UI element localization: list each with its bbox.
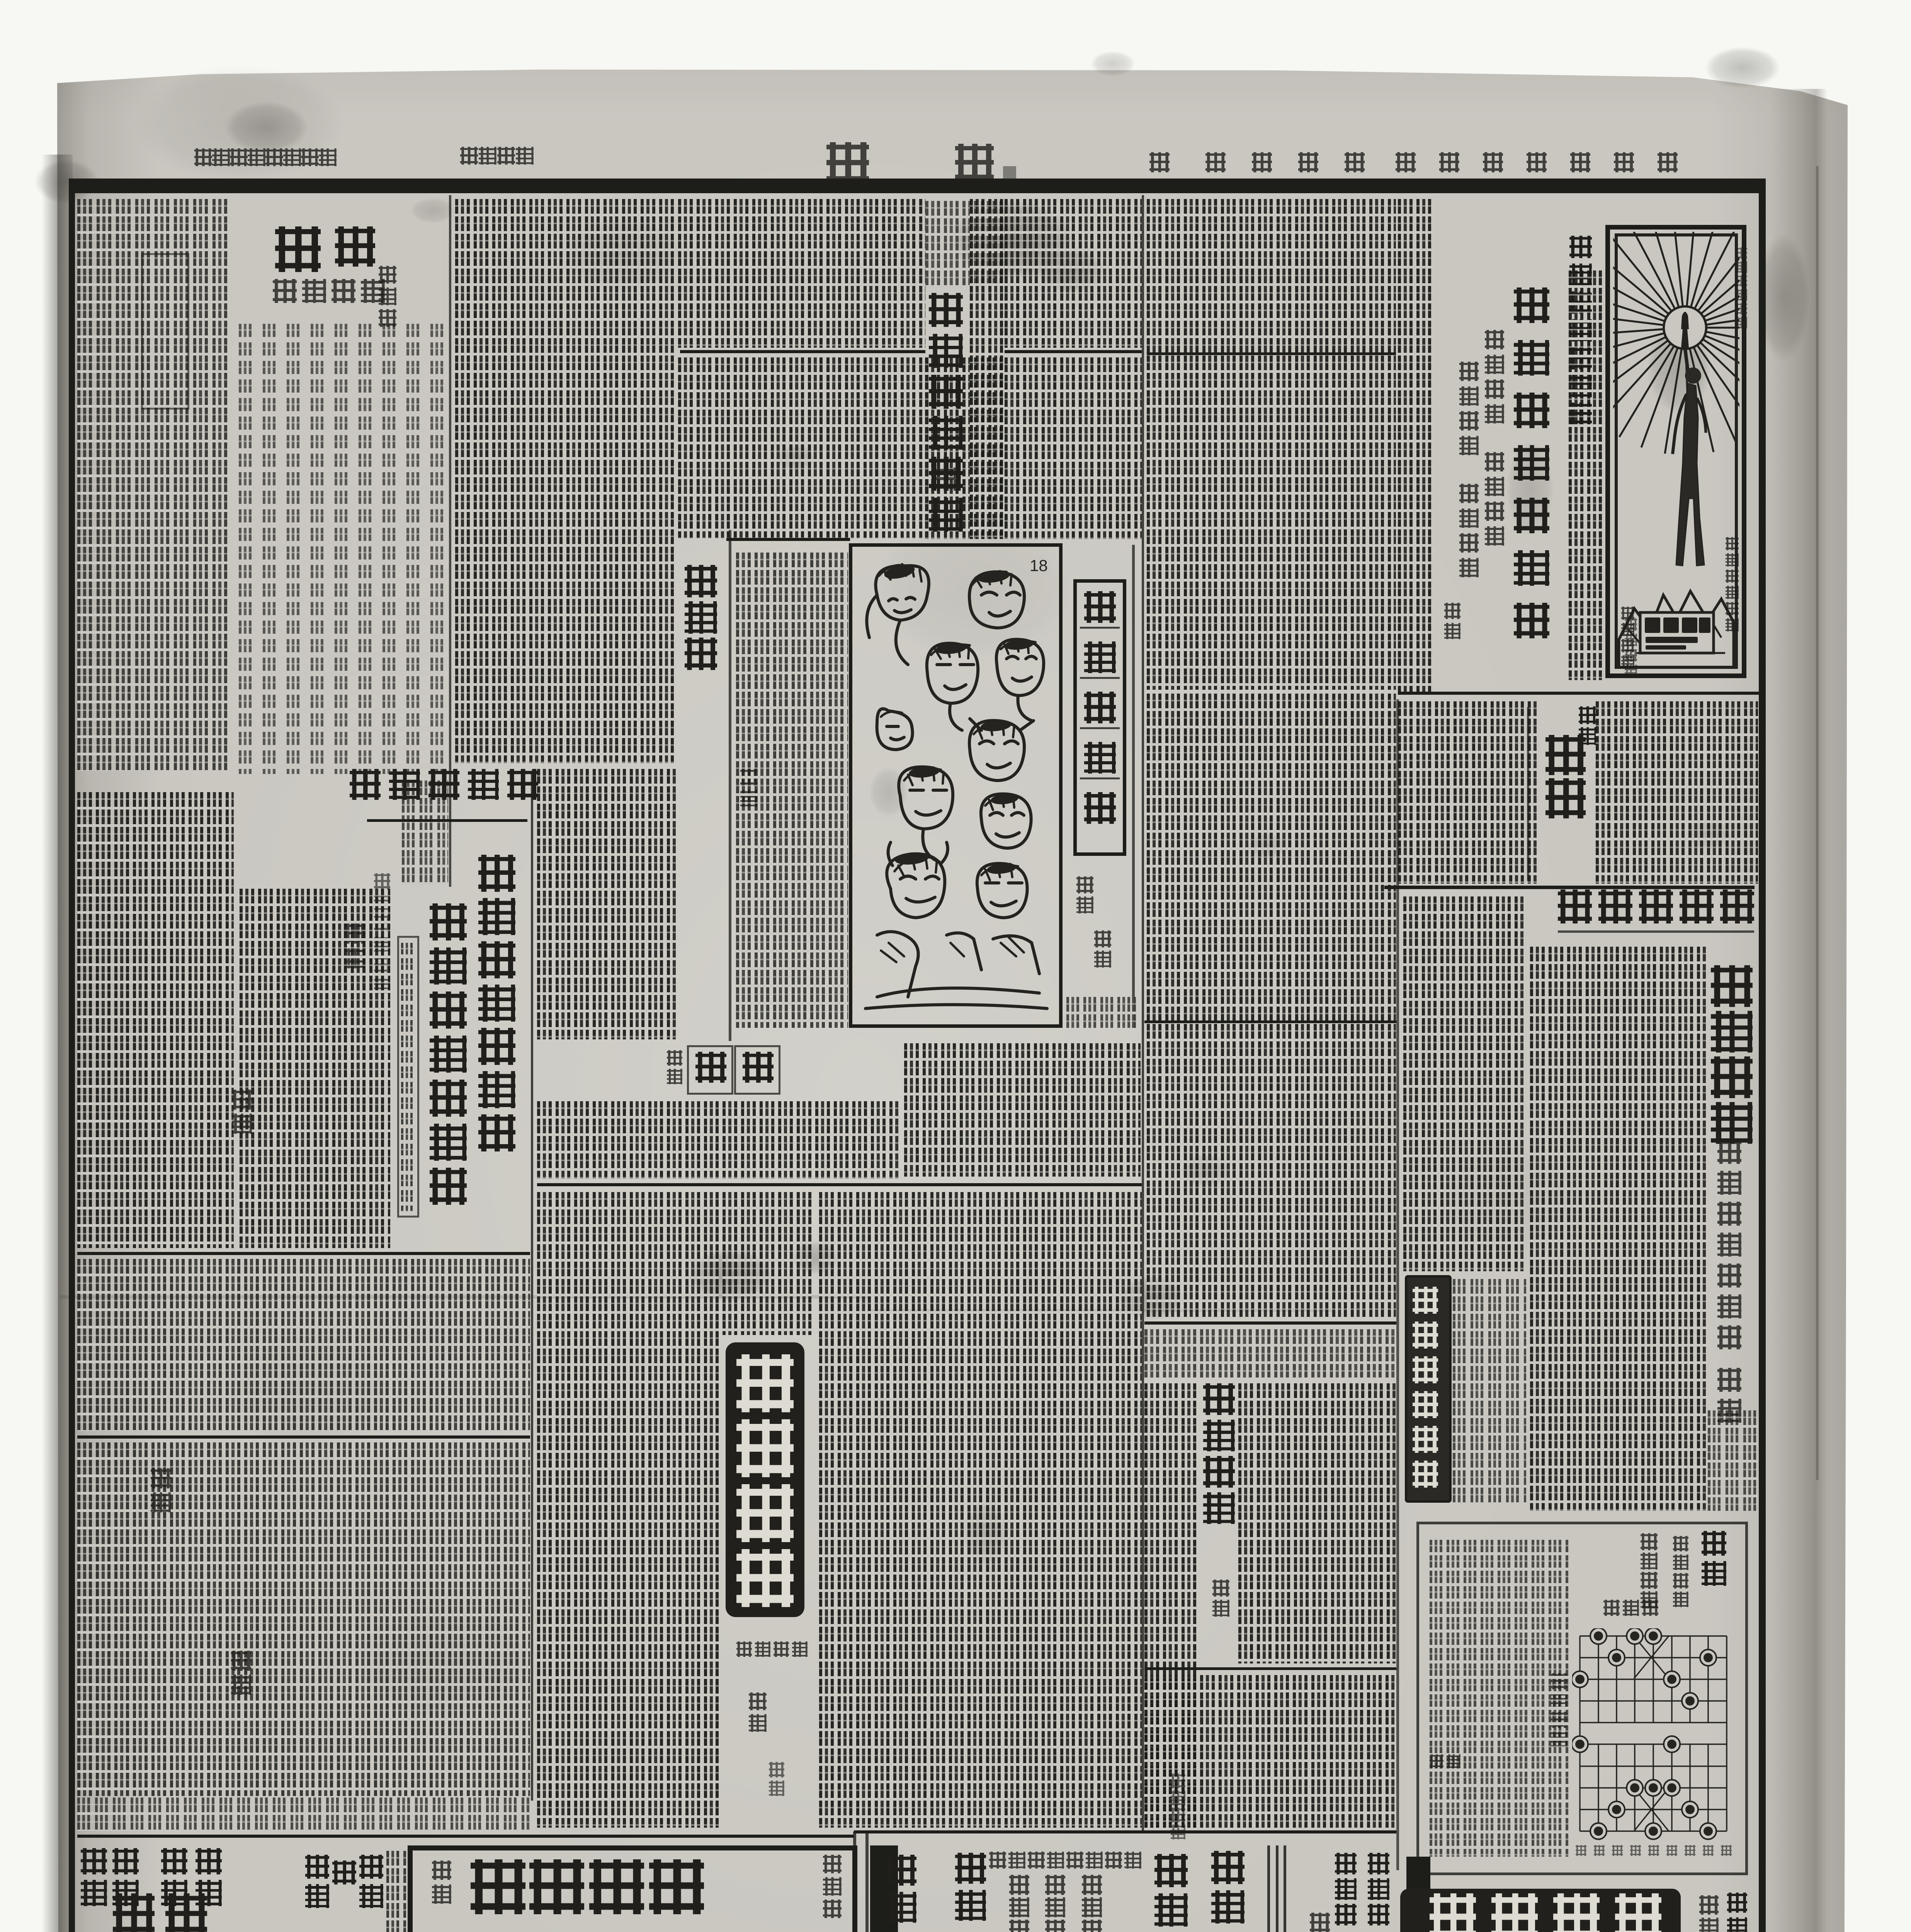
svg-text:18: 18 xyxy=(1030,556,1048,575)
